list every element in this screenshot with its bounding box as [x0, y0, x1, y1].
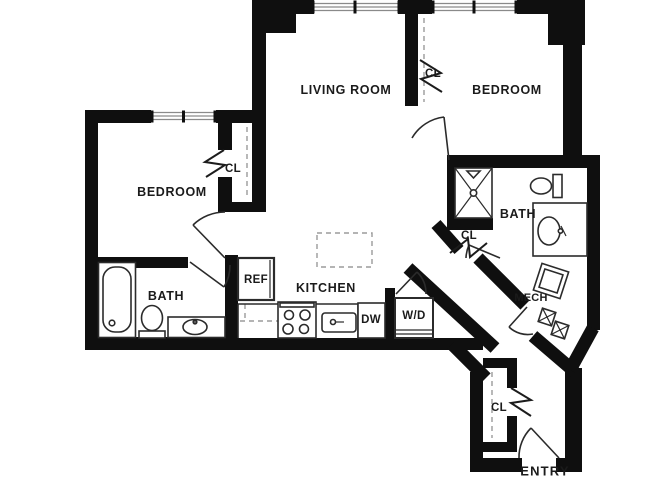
label-bath-right: BATH	[500, 207, 536, 221]
bathtub-icon	[99, 263, 136, 338]
shower-icon	[455, 168, 492, 218]
toilet-right-icon	[531, 175, 563, 198]
entry-door	[519, 428, 559, 458]
label-closet-left: CL	[225, 163, 241, 175]
label-closet-living: CL	[425, 68, 441, 80]
label-entry: ENTRY	[520, 464, 569, 479]
toilet-icon	[139, 306, 165, 339]
kitchen-island-dashed	[317, 233, 372, 267]
label-bedroom-left: BEDROOM	[137, 185, 207, 199]
label-living-room: LIVING ROOM	[301, 83, 392, 97]
vanity-right-icon	[533, 203, 587, 256]
label-kitchen: KITCHEN	[296, 281, 356, 295]
vanity-sink-icon	[168, 317, 225, 338]
label-mech: MECH	[514, 292, 547, 304]
label-closet-right: CL	[461, 230, 477, 242]
bedroom-left-door	[193, 212, 225, 258]
closet-left-bifold	[205, 150, 225, 177]
label-bedroom-right: BEDROOM	[472, 83, 542, 97]
label-washer-dryer: W/D	[402, 310, 425, 322]
floor-plan-svg	[0, 0, 670, 480]
mech-units-icon	[538, 308, 569, 339]
label-dishwasher: DW	[361, 314, 381, 326]
closet-entry-bifold	[511, 388, 531, 416]
window-glazing	[151, 1, 517, 123]
stove-icon	[278, 302, 316, 338]
label-closet-entry: CL	[491, 402, 507, 414]
mech-door	[509, 307, 533, 335]
label-bath-left: BATH	[148, 289, 184, 303]
label-refrigerator: REF	[244, 274, 268, 286]
bedroom-right-door	[412, 117, 449, 160]
floor-plan: LIVING ROOM CL BEDROOM BEDROOM CL BATH R…	[0, 0, 670, 480]
kitchen-sink-icon	[322, 313, 356, 332]
bath-left-door	[190, 262, 230, 287]
